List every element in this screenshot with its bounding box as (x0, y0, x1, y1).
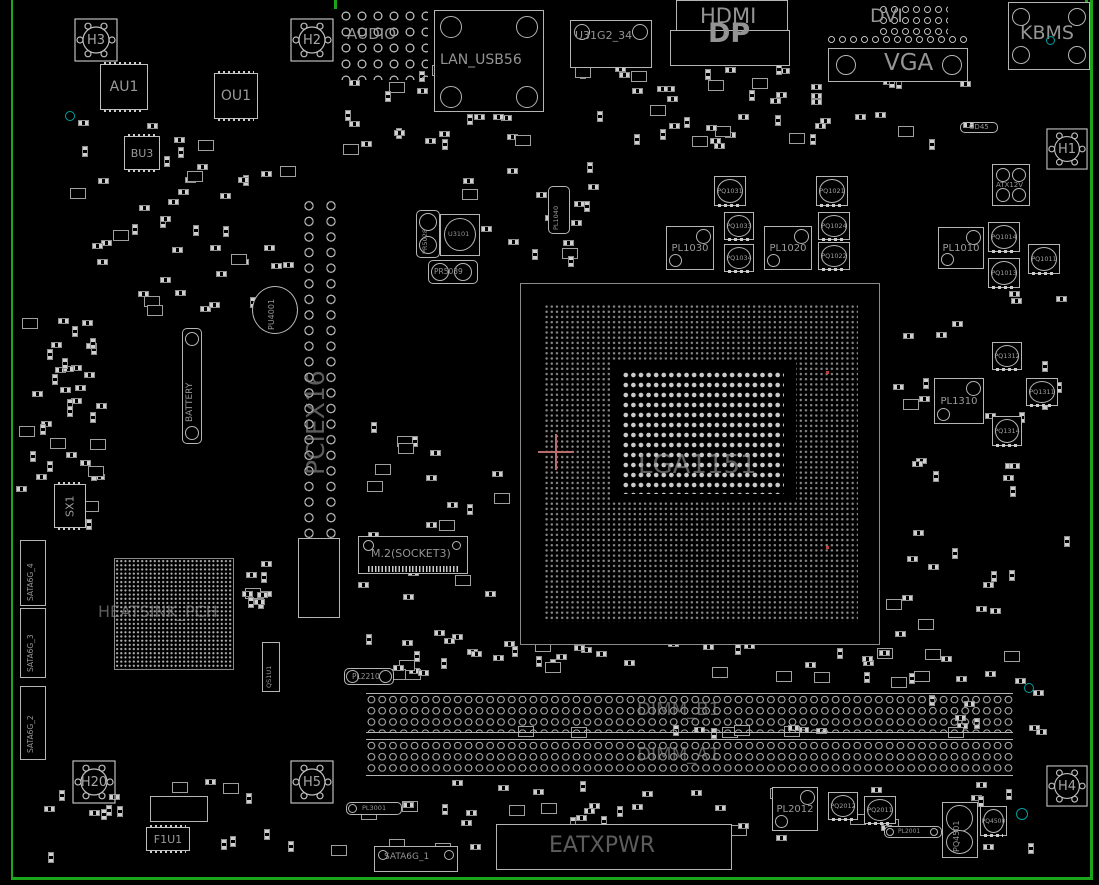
passive-component[interactable] (498, 785, 509, 791)
passive-component[interactable] (174, 137, 185, 143)
passive-component[interactable] (238, 177, 249, 183)
small-ic[interactable] (147, 305, 163, 316)
passive-component[interactable] (929, 139, 935, 150)
passive-component[interactable] (60, 387, 71, 393)
mount-hole-h2[interactable]: H2 (290, 18, 334, 62)
passive-component[interactable] (1033, 690, 1044, 696)
small-ic[interactable] (575, 67, 591, 78)
audio-jack-holes (338, 8, 428, 80)
mosfet-pq2012[interactable]: PQ2012 (828, 792, 858, 820)
passive-component[interactable] (471, 651, 482, 657)
atx12v-hole (996, 168, 1010, 182)
passive-component[interactable] (1015, 678, 1026, 684)
passive-component[interactable] (1011, 298, 1022, 304)
passive-component[interactable] (178, 189, 189, 195)
passive-component[interactable] (444, 638, 455, 644)
passive-component[interactable] (879, 650, 890, 656)
passive-component[interactable] (139, 205, 150, 211)
passive-component[interactable] (576, 815, 587, 821)
passive-component[interactable] (40, 424, 46, 435)
passive-component[interactable] (705, 69, 711, 80)
small-ic[interactable] (752, 78, 768, 89)
passive-component[interactable] (106, 805, 112, 816)
passive-component[interactable] (349, 80, 360, 86)
passive-component[interactable] (536, 656, 542, 667)
small-ic[interactable] (692, 136, 708, 147)
passive-component[interactable] (597, 111, 603, 122)
passive-component[interactable] (811, 93, 822, 99)
passive-component[interactable] (691, 790, 702, 796)
passive-component[interactable] (66, 452, 77, 458)
mosfet-pq1033[interactable]: PQ1033 (724, 212, 754, 240)
small-ic[interactable] (631, 71, 647, 82)
passive-component[interactable] (467, 114, 473, 125)
passive-component[interactable] (642, 791, 653, 797)
passive-component[interactable] (96, 403, 107, 409)
passive-component[interactable] (220, 193, 231, 199)
small-ic[interactable] (918, 619, 934, 630)
passive-component[interactable] (574, 645, 585, 651)
small-ic[interactable] (22, 318, 38, 329)
passive-component[interactable] (596, 651, 607, 657)
small-ic[interactable] (708, 80, 724, 91)
small-ic[interactable] (88, 466, 104, 477)
passive-component[interactable] (89, 810, 100, 816)
small-ic[interactable] (789, 133, 805, 144)
passive-component[interactable] (1009, 463, 1020, 469)
inductor-pl1030[interactable]: PL1030 (666, 226, 714, 270)
passive-component[interactable] (178, 147, 184, 158)
passive-component[interactable] (776, 92, 787, 98)
passive-component[interactable] (775, 115, 781, 126)
passive-component[interactable] (62, 358, 68, 369)
passive-component[interactable] (919, 396, 930, 402)
small-ic[interactable] (439, 520, 455, 531)
passive-component[interactable] (261, 572, 267, 583)
small-ic[interactable] (70, 188, 86, 199)
passive-component[interactable] (714, 143, 725, 149)
small-ic[interactable] (462, 189, 478, 200)
passive-component[interactable] (132, 224, 138, 235)
passive-component[interactable] (426, 475, 437, 481)
passive-component[interactable] (875, 112, 886, 118)
passive-component[interactable] (257, 592, 268, 598)
passive-component[interactable] (810, 134, 816, 145)
passive-component[interactable] (442, 804, 448, 815)
passive-component[interactable] (205, 779, 216, 785)
passive-component[interactable] (223, 226, 229, 237)
small-ic[interactable] (455, 575, 471, 586)
passive-component[interactable] (895, 631, 906, 637)
passive-component[interactable] (617, 806, 623, 817)
passive-component[interactable] (923, 378, 929, 389)
passive-component[interactable] (990, 608, 1001, 614)
passive-component[interactable] (556, 654, 567, 660)
passive-component[interactable] (75, 385, 86, 391)
small-ic[interactable] (494, 493, 510, 504)
passive-component[interactable] (571, 220, 582, 226)
passive-component[interactable] (16, 486, 27, 492)
pq4501-label: PQ4501 (953, 808, 961, 852)
passive-component[interactable] (82, 320, 93, 326)
passive-component[interactable] (160, 277, 171, 283)
passive-component[interactable] (439, 131, 450, 137)
passive-component[interactable] (1010, 486, 1016, 497)
small-ic[interactable] (280, 166, 296, 177)
passive-component[interactable] (230, 836, 236, 847)
dimm-a1-label: DIMM_A1 (637, 746, 720, 764)
passive-component[interactable] (470, 844, 481, 850)
small-ic[interactable] (343, 144, 359, 155)
small-ic[interactable] (398, 443, 414, 454)
passive-component[interactable] (164, 156, 170, 167)
passive-component[interactable] (264, 829, 270, 840)
passive-component[interactable] (1064, 536, 1070, 547)
passive-component[interactable] (474, 114, 485, 120)
mosfet-label: PQ4500 (981, 807, 1006, 835)
passive-component[interactable] (574, 201, 585, 207)
passive-component[interactable] (32, 391, 43, 397)
passive-component[interactable] (588, 184, 599, 190)
passive-component[interactable] (976, 782, 987, 788)
passive-component[interactable] (657, 86, 668, 92)
mosfet-pq1031[interactable]: PQ1031 (714, 176, 746, 206)
passive-component[interactable] (862, 656, 873, 662)
small-ic[interactable] (198, 140, 214, 151)
small-ic[interactable] (650, 105, 666, 116)
mosfet-pq1024[interactable]: PQ1024 (818, 212, 850, 240)
chip-bu3[interactable]: BU3 (124, 136, 160, 170)
passive-component[interactable] (288, 841, 294, 852)
passive-component[interactable] (1036, 729, 1047, 735)
passive-component[interactable] (1006, 789, 1012, 800)
passive-component[interactable] (706, 125, 717, 131)
passive-component[interactable] (532, 249, 538, 260)
passive-component[interactable] (86, 519, 92, 530)
mount-hole-h1[interactable]: H1 (1046, 128, 1088, 170)
mosfet-pq1314[interactable]: PQ1314 (992, 416, 1022, 446)
passive-component[interactable] (261, 561, 272, 567)
small-ic[interactable] (715, 126, 731, 137)
mosfet-pq1013[interactable]: PQ1013 (988, 258, 1020, 288)
passive-component[interactable] (738, 114, 749, 120)
passive-component[interactable] (667, 96, 678, 102)
mount-hole-h4[interactable]: H4 (1046, 765, 1088, 807)
passive-component[interactable] (426, 522, 437, 528)
passive-component[interactable] (82, 146, 88, 157)
passive-component[interactable] (907, 556, 918, 562)
passive-component[interactable] (30, 451, 36, 462)
passive-component[interactable] (976, 606, 987, 612)
passive-component[interactable] (913, 530, 924, 536)
small-ic[interactable] (898, 126, 914, 137)
passive-component[interactable] (1003, 475, 1014, 481)
passive-component[interactable] (991, 571, 997, 582)
passive-component[interactable] (632, 88, 643, 94)
passive-component[interactable] (634, 134, 640, 145)
passive-component[interactable] (197, 164, 208, 170)
small-ic[interactable] (925, 649, 941, 660)
lan-usb-label: LAN_USB56 (440, 53, 522, 67)
passive-component[interactable] (983, 844, 994, 850)
small-ic[interactable] (914, 671, 930, 682)
passive-component[interactable] (811, 84, 822, 90)
mosfet-pq2011[interactable]: PQ2011 (864, 796, 896, 824)
passive-component[interactable] (1056, 296, 1067, 302)
passive-component[interactable] (864, 672, 870, 683)
boardview-canvas: AUDIO LAN_USB56 U31G2_34 HDMI DP DVI VGA… (0, 0, 1099, 885)
passive-component[interactable] (117, 806, 123, 817)
passive-component[interactable] (160, 216, 171, 222)
passive-component[interactable] (493, 655, 504, 661)
gd45-label[interactable]: GD45 (960, 122, 998, 133)
passive-component[interactable] (430, 450, 441, 456)
mosfet-pq1034[interactable]: PQ1034 (724, 244, 754, 272)
passive-component[interactable] (493, 114, 504, 120)
passive-component[interactable] (956, 676, 967, 682)
passive-component[interactable] (254, 599, 265, 605)
mosfet-pq1311[interactable]: PQ1311 (1026, 378, 1058, 406)
passive-component[interactable] (507, 168, 518, 174)
passive-component[interactable] (72, 326, 78, 337)
small-ic[interactable] (375, 464, 391, 475)
passive-component[interactable] (725, 67, 736, 73)
passive-component[interactable] (936, 332, 947, 338)
passive-component[interactable] (242, 591, 253, 597)
passive-component[interactable] (441, 658, 447, 669)
passive-component[interactable] (485, 591, 496, 597)
passive-component[interactable] (811, 99, 822, 105)
small-ic[interactable] (545, 662, 561, 673)
inductor-pl1020[interactable]: PL1020 (764, 226, 812, 270)
passive-component[interactable] (512, 646, 518, 657)
passive-component[interactable] (417, 88, 428, 94)
passive-component[interactable] (246, 793, 252, 804)
chip-ou1[interactable]: OU1 (214, 73, 258, 119)
mosfet-pq4500[interactable]: PQ4500 (980, 806, 1007, 836)
small-ic[interactable] (367, 481, 383, 492)
mosfet-pq1011[interactable]: PQ1011 (1028, 244, 1060, 274)
small-ic[interactable] (776, 671, 792, 682)
passive-component[interactable] (361, 141, 372, 147)
spi-header[interactable] (150, 796, 208, 822)
small-ic[interactable] (113, 230, 129, 241)
passive-component[interactable] (619, 72, 630, 78)
small-ic[interactable] (712, 667, 728, 678)
inductor-pl1310[interactable]: PL1310 (934, 378, 984, 424)
passive-component[interactable] (770, 98, 781, 104)
passive-component[interactable] (533, 789, 544, 795)
passive-component[interactable] (92, 243, 103, 249)
passive-component[interactable] (44, 806, 55, 812)
small-ic[interactable] (1004, 651, 1020, 662)
small-ic[interactable] (389, 82, 405, 93)
passive-component[interactable] (587, 162, 593, 173)
passive-component[interactable] (90, 338, 96, 349)
passive-component[interactable] (912, 461, 923, 467)
passive-component[interactable] (349, 121, 360, 127)
passive-component[interactable] (568, 256, 574, 267)
passive-component[interactable] (394, 130, 405, 136)
inductor-pl1010[interactable]: PL1010 (938, 227, 984, 269)
front-panel-header[interactable] (298, 538, 340, 618)
passive-component[interactable] (147, 123, 158, 129)
passive-component[interactable] (837, 648, 843, 659)
small-ic[interactable] (172, 782, 188, 793)
passive-component[interactable] (48, 852, 54, 863)
passive-component[interactable] (78, 120, 89, 126)
passive-component[interactable] (358, 582, 369, 588)
passive-component[interactable] (805, 662, 816, 668)
mosfet-pq1014[interactable]: PQ1014 (988, 222, 1020, 252)
passive-component[interactable] (52, 374, 58, 385)
passive-component[interactable] (508, 239, 519, 245)
small-ic[interactable] (331, 845, 347, 856)
mosfet-pq1021[interactable]: PQ1021 (816, 176, 848, 206)
passive-component[interactable] (442, 139, 448, 150)
small-ic[interactable] (886, 599, 902, 610)
passive-component[interactable] (684, 117, 690, 128)
passive-component[interactable] (261, 171, 272, 177)
passive-component[interactable] (98, 178, 109, 184)
passive-component[interactable] (563, 240, 574, 246)
passive-component[interactable] (1042, 361, 1048, 372)
passive-component[interactable] (193, 225, 199, 236)
passive-component[interactable] (216, 271, 227, 277)
chip-f1u1[interactable]: F1U1 (146, 827, 190, 851)
passive-component[interactable] (952, 548, 958, 559)
passive-component[interactable] (738, 823, 749, 829)
passive-component[interactable] (209, 302, 220, 308)
passive-component[interactable] (175, 290, 186, 296)
passive-component[interactable] (933, 471, 939, 482)
passive-component[interactable] (246, 572, 257, 578)
passive-component[interactable] (47, 349, 53, 360)
small-ic[interactable] (19, 426, 35, 437)
passive-component[interactable] (221, 839, 227, 850)
sata6g4-label: SATA6G_4 (27, 545, 35, 601)
mount-hole-h5[interactable]: H5 (290, 760, 334, 804)
passive-component[interactable] (97, 259, 108, 265)
passive-component[interactable] (660, 129, 666, 140)
passive-component[interactable] (536, 192, 547, 198)
passive-component[interactable] (481, 226, 492, 232)
passive-component[interactable] (283, 262, 294, 268)
small-ic[interactable] (231, 254, 247, 265)
kbms-hole (1068, 46, 1086, 64)
mosfet-pq1312[interactable]: PQ1312 (992, 342, 1022, 370)
passive-component[interactable] (90, 412, 96, 423)
passive-component[interactable] (366, 634, 372, 645)
passive-component[interactable] (903, 333, 914, 339)
passive-component[interactable] (624, 660, 635, 666)
passive-component[interactable] (47, 461, 53, 472)
passive-component[interactable] (928, 564, 939, 570)
passive-component[interactable] (1009, 570, 1015, 581)
passive-component[interactable] (402, 640, 413, 646)
passive-component[interactable] (403, 594, 414, 600)
passive-component[interactable] (58, 318, 69, 324)
passive-component[interactable] (452, 780, 463, 786)
passive-component[interactable] (580, 781, 586, 792)
passive-component[interactable] (84, 372, 95, 378)
passive-component[interactable] (749, 90, 755, 101)
passive-component[interactable] (632, 804, 643, 810)
passive-component[interactable] (51, 342, 62, 348)
passive-component[interactable] (1009, 291, 1020, 297)
small-ic[interactable] (891, 677, 907, 688)
small-ic[interactable] (515, 135, 531, 146)
passive-component[interactable] (393, 665, 404, 671)
passive-component[interactable] (271, 263, 282, 269)
passive-component[interactable] (492, 471, 503, 477)
passive-component[interactable] (855, 114, 866, 120)
inductor-label: PL1020 (765, 227, 811, 269)
passive-component[interactable] (371, 422, 377, 433)
passive-component[interactable] (345, 110, 351, 121)
chip-sx1[interactable]: SX1 (54, 484, 86, 528)
small-ic[interactable] (187, 171, 203, 182)
passive-component[interactable] (36, 474, 47, 480)
mosfet-label: PQ1011 (1029, 245, 1059, 273)
mosfet-pq1022[interactable]: PQ1022 (818, 242, 850, 270)
passive-component[interactable] (983, 582, 994, 588)
usb-hole (632, 24, 648, 40)
passive-component[interactable] (735, 644, 741, 655)
passive-component[interactable] (210, 245, 221, 251)
passive-component[interactable] (461, 820, 472, 826)
passive-component[interactable] (168, 199, 179, 205)
passive-component[interactable] (418, 670, 429, 676)
passive-component[interactable] (59, 790, 65, 801)
inductor-pl2012[interactable]: PL2012 (772, 787, 818, 831)
small-ic[interactable] (90, 439, 106, 450)
mount-hole-h3[interactable]: H3 (74, 18, 118, 62)
passive-component[interactable] (67, 406, 73, 417)
passive-component[interactable] (447, 502, 458, 508)
passive-component[interactable] (584, 808, 595, 814)
passive-component[interactable] (952, 321, 963, 327)
passive-component[interactable] (871, 787, 882, 793)
small-ic[interactable] (223, 783, 239, 794)
small-ic[interactable] (814, 672, 830, 683)
passive-component[interactable] (434, 630, 445, 636)
passive-component[interactable] (466, 810, 477, 816)
passive-component[interactable] (941, 656, 952, 662)
passive-component[interactable] (715, 805, 726, 811)
passive-component[interactable] (1028, 843, 1034, 854)
passive-component[interactable] (776, 835, 787, 841)
passive-component[interactable] (669, 123, 680, 129)
passive-component[interactable] (425, 138, 436, 144)
passive-component[interactable] (463, 178, 474, 184)
passive-component[interactable] (985, 671, 996, 677)
small-ic[interactable] (541, 803, 557, 814)
passive-component[interactable] (820, 118, 831, 124)
passive-component[interactable] (902, 595, 913, 601)
passive-component[interactable] (172, 247, 183, 253)
small-ic[interactable] (509, 805, 525, 816)
small-ic[interactable] (903, 399, 919, 410)
passive-component[interactable] (264, 245, 275, 251)
mount-hole-h20[interactable]: H20 (72, 760, 116, 804)
passive-component[interactable] (385, 91, 391, 102)
passive-component[interactable] (467, 504, 473, 515)
passive-component[interactable] (893, 384, 904, 390)
chip-au1[interactable]: AU1 (100, 64, 148, 110)
passive-component[interactable] (403, 802, 414, 808)
small-ic[interactable] (50, 438, 66, 449)
